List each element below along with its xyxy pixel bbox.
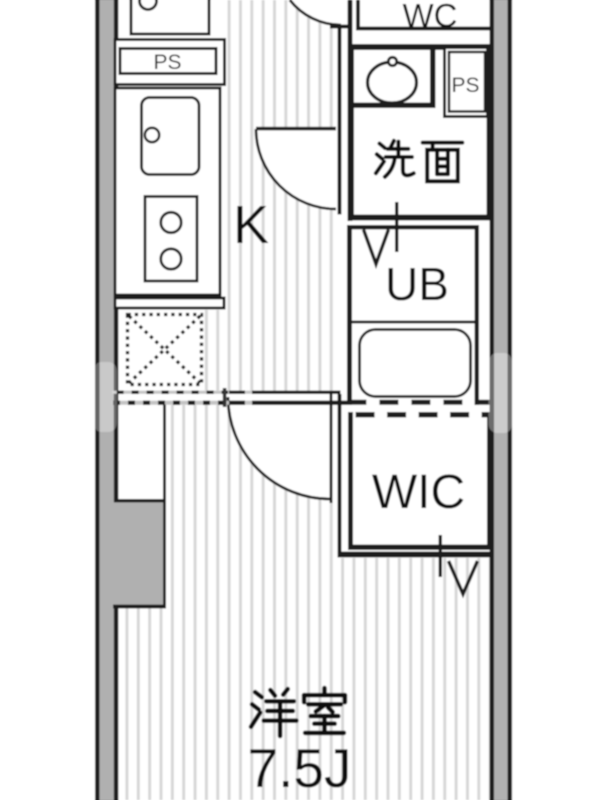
svg-text:UB: UB	[385, 258, 449, 310]
svg-text:PS: PS	[153, 51, 181, 74]
svg-text:K: K	[233, 195, 269, 255]
svg-text:WC: WC	[403, 0, 458, 34]
svg-text:7.5J: 7.5J	[248, 737, 352, 799]
svg-text:PS: PS	[451, 74, 479, 97]
svg-text:WIC: WIC	[372, 466, 465, 519]
